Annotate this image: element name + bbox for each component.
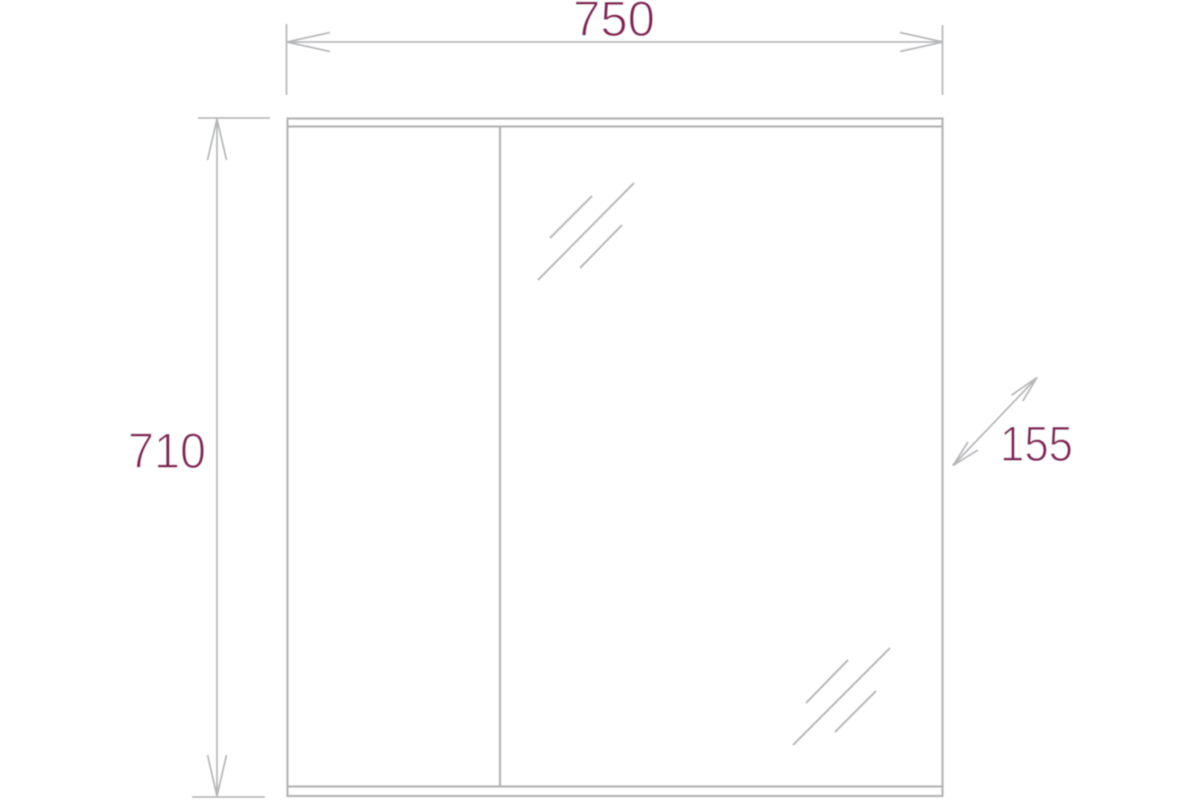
svg-text:710: 710 <box>128 423 206 479</box>
svg-text:750: 750 <box>573 0 655 47</box>
svg-text:155: 155 <box>1000 416 1073 472</box>
